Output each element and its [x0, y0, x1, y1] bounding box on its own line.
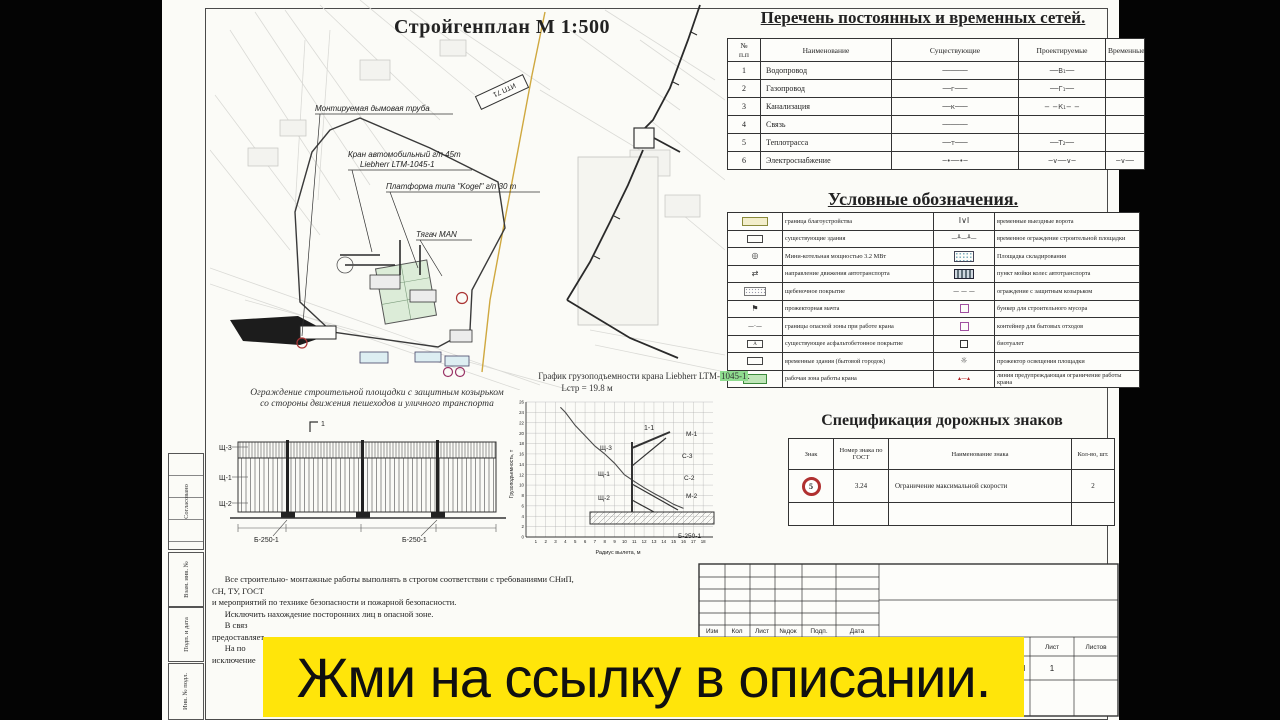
fence-elevation-drawing: 1 Щ-3 Щ-1 Щ-2 Б-250-1 Б-250-1: [218, 416, 518, 548]
networks-header: Наименование: [761, 39, 892, 62]
legend-row: временные здания (бытовой городок)☼проже…: [728, 353, 1140, 371]
legend-label-cell: временное ограждение строительной площад…: [995, 230, 1140, 248]
smallbox-symbol-icon: [747, 235, 763, 243]
legend-symbol-cell: I∨I: [934, 213, 995, 231]
svg-text:Дата: Дата: [850, 628, 865, 635]
legend-symbol-cell: ⇄: [728, 265, 783, 283]
signs-empty-cell: [789, 503, 834, 526]
networks-cell-existing: ──г───: [892, 80, 1019, 98]
chart-tick-label: 5: [574, 539, 577, 544]
signs-cell-name: Ограничение максимальной скорости: [889, 470, 1072, 503]
svg-text:Лист: Лист: [1045, 644, 1059, 651]
dimension-line: [238, 524, 496, 532]
networks-cell-num: 1: [728, 62, 761, 80]
side-strip-approved: Согласовано: [168, 453, 204, 550]
networks-row: 6Электроснабжение─•──•──∨──∨──∨──: [728, 152, 1145, 170]
legend-row: ⇄направление движения автотранспортапунк…: [728, 265, 1140, 283]
signs-header: Наименование знака: [889, 439, 1072, 470]
svg-text:Подп.: Подп.: [810, 628, 827, 635]
video-frame: { "banner": { "text": "Жми на ссылку в о…: [0, 0, 1280, 720]
arrows-symbol-icon: ⇄: [752, 269, 759, 278]
chart-tick-label: 20: [519, 431, 524, 436]
legend-symbol-cell: [934, 265, 995, 283]
networks-row: 5Теплотрасса──т─────Т₂──: [728, 134, 1145, 152]
chimney-label: Монтируемая дымовая труба: [315, 104, 430, 113]
notes-line: Все строительно- монтажные работы выполн…: [212, 574, 692, 586]
networks-cell-name: Электроснабжение: [761, 152, 892, 170]
utility-node-box: [634, 128, 654, 148]
legend-label-cell: прожекторная мачта: [783, 300, 934, 318]
road-signs-table: ЗнакНомер знака по ГОСТНаименование знак…: [788, 438, 1115, 526]
svg-text:Щ-3: Щ-3: [600, 445, 612, 452]
networks-header: № п.п: [728, 39, 761, 62]
legend-symbol-cell: [934, 248, 995, 266]
posts-symbol-icon: —╨—╨—: [951, 235, 976, 242]
legend-symbol-cell: [728, 213, 783, 231]
networks-cell-temporary: ─∨──: [1106, 152, 1145, 170]
dashes-symbol-icon: — — —: [953, 288, 975, 295]
signs-header: Номер знака по ГОСТ: [834, 439, 889, 470]
legend-label-cell: направление движения автотранспорта: [783, 265, 934, 283]
asphalt-symbol-icon: А: [747, 340, 763, 348]
networks-cell-num: 6: [728, 152, 761, 170]
networks-title: Перечень постоянных и временных сетей.: [727, 8, 1119, 28]
light-symbol-icon: ☼: [960, 356, 967, 365]
legend-symbol-cell: — — —: [934, 283, 995, 301]
fence-caption-line1: Ограждение строительной площадки с защит…: [212, 388, 542, 399]
svg-text:С-3: С-3: [682, 453, 693, 460]
chart-tick-label: 8: [522, 493, 525, 498]
legend-symbol-cell: [934, 300, 995, 318]
plan-label-box: [300, 326, 336, 339]
signs-header: Кол-во, шт.: [1072, 439, 1115, 470]
networks-header: Временные: [1106, 39, 1145, 62]
itp-box: ИТП 71: [475, 75, 528, 110]
gate-symbol-icon: I∨I: [959, 216, 970, 225]
mast-symbol-icon: ⚑: [751, 304, 758, 313]
legend-label-cell: щебеночное покрытие: [783, 283, 934, 301]
chart-tick-label: 18: [519, 441, 524, 446]
legend-row: граница благоустройстваI∨Iвременные выез…: [728, 213, 1140, 231]
chart-x-axis-label: Радиус вылета, м: [595, 550, 640, 556]
notes-line: СН, ТУ, ГОСТ: [212, 586, 692, 598]
networks-row: 4Связь──────: [728, 116, 1145, 134]
legend-row: существующие здания—╨—╨—временное огражд…: [728, 230, 1140, 248]
svg-text:Щ-1: Щ-1: [219, 475, 232, 482]
networks-cell-temporary: [1106, 62, 1145, 80]
networks-header: Проектируемые: [1019, 39, 1106, 62]
legend-symbol-cell: ⚑: [728, 300, 783, 318]
networks-cell-name: Газопровод: [761, 80, 892, 98]
legend-symbol-cell: [728, 230, 783, 248]
container-symbol-icon: [960, 322, 969, 331]
toilet-symbol-icon: [960, 340, 968, 348]
svg-text:Кол: Кол: [731, 628, 742, 635]
legend-label-cell: рабочая зона работы крана: [783, 370, 934, 388]
signs-cell-qty: 2: [1072, 470, 1115, 503]
chart-tick-label: 2: [522, 524, 525, 529]
signs-header: Знак: [789, 439, 834, 470]
legend-label-cell: существующее асфальтобетонное покрытие: [783, 335, 934, 353]
chart-tick-label: 6: [522, 503, 525, 508]
networks-cell-projected: [1019, 116, 1106, 134]
notes-line: Исключить нахождение посторонних лиц в о…: [212, 609, 692, 621]
networks-cell-existing: ─•──•─: [892, 152, 1019, 170]
networks-cell-name: Теплотрасса: [761, 134, 892, 152]
legend-symbol-cell: —╨—╨—: [934, 230, 995, 248]
fence-section-structure: [632, 432, 670, 512]
signs-empty-cell: [889, 503, 1072, 526]
svg-text:Щ-2: Щ-2: [598, 495, 610, 502]
bunker-symbol-icon: [960, 304, 969, 313]
notes-line: и мероприятий по технике безопасности и …: [212, 597, 692, 609]
chart-tick-label: 4: [522, 514, 525, 519]
svg-text:1: 1: [321, 421, 325, 428]
svg-text:С-2: С-2: [684, 475, 695, 482]
site-plan-drawing: ИТП 71 Монтируемая дымовая труба Кран ав…: [210, 0, 725, 390]
drawing-sheet: ИТП 71 Монтируемая дымовая труба Кран ав…: [162, 0, 1119, 720]
networks-cell-temporary: [1106, 134, 1145, 152]
legend-label-cell: временные здания (бытовой городок): [783, 353, 934, 371]
gravel-symbol-icon: [744, 287, 766, 296]
networks-cell-projected: ──В₁──: [1019, 62, 1106, 80]
crane-chart-title-highlight: 1045-1: [720, 371, 748, 381]
svg-text:Листов: Листов: [1085, 644, 1107, 651]
legend-label-cell: Площадка складирования: [995, 248, 1140, 266]
chart-tick-label: 12: [519, 472, 524, 477]
svg-text:Б-250-1: Б-250-1: [678, 533, 701, 540]
legend-row: щебеночное покрытие— — —ограждение с защ…: [728, 283, 1140, 301]
signs-row: 53.24Ограничение максимальной скорости2: [789, 470, 1115, 503]
legend-symbol-cell: ▴—▴: [934, 370, 995, 388]
chart-tick-label: 4: [564, 539, 567, 544]
chart-tick-label: 0: [522, 535, 525, 540]
networks-cell-num: 3: [728, 98, 761, 116]
networks-cell-existing: ──к───: [892, 98, 1019, 116]
networks-cell-temporary: [1106, 98, 1145, 116]
networks-cell-temporary: [1106, 116, 1145, 134]
road-signs-title: Спецификация дорожных знаков: [792, 412, 1092, 430]
legend-label-cell: существующие здания: [783, 230, 934, 248]
networks-table: № п.пНаименованиеСуществующиеПроектируем…: [727, 38, 1145, 170]
chart-tick-label: 1: [535, 539, 538, 544]
legend-label-cell: биотуалет: [995, 335, 1140, 353]
networks-cell-projected: ──Т₂──: [1019, 134, 1106, 152]
legend-symbol-cell: А: [728, 335, 783, 353]
chart-tick-label: 24: [519, 410, 524, 415]
legend-title: Условные обозначения.: [727, 189, 1119, 210]
legend-label-cell: Мини-котельная мощностью 3.2 МВт: [783, 248, 934, 266]
legend-symbol-cell: [934, 318, 995, 336]
sheet-number: 1: [1050, 664, 1055, 673]
svg-text:М-2: М-2: [686, 493, 698, 500]
crane-chart-title: График грузоподъемности крана Liebherr L…: [494, 371, 794, 381]
svg-text:№док: №док: [779, 628, 796, 635]
side-strip-inv: Инв. № подл.: [168, 663, 204, 720]
crane-chart-title-text: График грузоподъемности крана Liebherr L…: [538, 371, 720, 381]
legend-label-cell: прожектор освещения площадки: [995, 353, 1140, 371]
dashdot-symbol-icon: —·—: [748, 323, 762, 330]
networks-cell-num: 2: [728, 80, 761, 98]
view-mark: 1: [310, 421, 325, 432]
legend-label-cell: ограждение с защитным козырьком: [995, 283, 1140, 301]
crane-label-2: Liebherr LTM-1045-1: [360, 160, 435, 169]
side-strip-podp: Подп. и дата: [168, 607, 204, 662]
networks-cell-name: Водопровод: [761, 62, 892, 80]
legend-symbol-cell: [728, 283, 783, 301]
crane-chart-title-period: .: [748, 371, 750, 381]
fence-caption-line2: со стороны движения пешеходов и уличного…: [212, 399, 542, 410]
cta-banner-text: Жми на ссылку в описании.: [297, 645, 991, 710]
signs-empty-cell: [1072, 503, 1115, 526]
plan-title: Стройгенплан М 1:500: [362, 16, 642, 39]
notes-line: В связ: [212, 620, 692, 632]
svg-text:Изм: Изм: [706, 628, 719, 635]
legend-label-cell: бункер для строительного мусора: [995, 300, 1140, 318]
cta-banner: Жми на ссылку в описании.: [263, 637, 1024, 717]
wash-symbol-icon: [954, 269, 974, 279]
legend-label-cell: граница благоустройства: [783, 213, 934, 231]
svg-text:М-1: М-1: [686, 431, 698, 438]
svg-text:Щ-2: Щ-2: [219, 501, 232, 508]
fence-section-drawing: 1-1 Щ-3 М-1 С-3 Щ-1 С-2 Щ-2 М-2 Б-250-1: [582, 420, 722, 542]
beige-symbol-icon: [742, 217, 768, 226]
signs-empty-row: [789, 503, 1115, 526]
tractor-label: Тягач MAN: [416, 230, 457, 239]
networks-cell-name: Канализация: [761, 98, 892, 116]
svg-text:Лист: Лист: [755, 628, 769, 635]
legend-row: Асуществующее асфальтобетонное покрытиеб…: [728, 335, 1140, 353]
networks-header-row: № п.пНаименованиеСуществующиеПроектируем…: [728, 39, 1145, 62]
networks-cell-existing: ──────: [892, 116, 1019, 134]
signs-cell-sign: 5: [789, 470, 834, 503]
networks-header: Существующие: [892, 39, 1019, 62]
svg-text:Б-250-1: Б-250-1: [402, 537, 427, 544]
networks-row: 3Канализация──к───− −К₁− −: [728, 98, 1145, 116]
platform-label: Платформа типа "Kogel" г/п 30 т: [386, 182, 517, 191]
networks-row: 1Водопровод────────В₁──: [728, 62, 1145, 80]
networks-cell-num: 4: [728, 116, 761, 134]
speed-limit-sign-icon: 5: [802, 477, 821, 496]
networks-cell-temporary: [1106, 80, 1145, 98]
chart-tick-label: 2: [544, 539, 547, 544]
svg-text:Щ-1: Щ-1: [598, 471, 610, 478]
legend-row: ◎Мини-котельная мощностью 3.2 МВтПлощадк…: [728, 248, 1140, 266]
legend-symbol-cell: ◎: [728, 248, 783, 266]
networks-cell-name: Связь: [761, 116, 892, 134]
warn-symbol-icon: ▴—▴: [958, 375, 970, 382]
section-mark: 1-1: [644, 425, 654, 432]
legend-row: —·—границы опасной зоны при работе крана…: [728, 318, 1140, 336]
legend-label-cell: пункт мойки колес автотранспорта: [995, 265, 1140, 283]
signs-header-row: ЗнакНомер знака по ГОСТНаименование знак…: [789, 439, 1115, 470]
legend-label-cell: линия предупреждающая ограничение работы…: [995, 370, 1140, 388]
svg-text:Б-250-1: Б-250-1: [254, 537, 279, 544]
networks-cell-projected: ──Г₁──: [1019, 80, 1106, 98]
chart-tick-label: 10: [519, 483, 524, 488]
crane-label-1: Кран автомобильный г/п 45т: [348, 150, 461, 159]
legend-row: ⚑прожекторная мачтабункер для строительн…: [728, 300, 1140, 318]
legend-symbol-cell: [934, 335, 995, 353]
chart-tick-label: 22: [519, 420, 524, 425]
networks-cell-projected: ─∨──∨─: [1019, 152, 1106, 170]
fence-section-braces: [632, 438, 678, 512]
cabins-symbol-icon: [747, 357, 763, 365]
chart-tick-label: 16: [519, 452, 524, 457]
side-strip-vzam: Взам. инв. №: [168, 552, 204, 607]
networks-row: 2Газопровод──г─────Г₁──: [728, 80, 1145, 98]
legend-table: граница благоустройстваI∨Iвременные выез…: [727, 212, 1140, 388]
signs-cell-gost: 3.24: [834, 470, 889, 503]
signs-empty-cell: [834, 503, 889, 526]
legend-symbol-cell: —·—: [728, 318, 783, 336]
networks-cell-existing: ──────: [892, 62, 1019, 80]
fence-caption: Ограждение строительной площадки с защит…: [212, 388, 542, 410]
networks-cell-existing: ──т───: [892, 134, 1019, 152]
networks-cell-num: 5: [728, 134, 761, 152]
chart-tick-label: 3: [554, 539, 557, 544]
legend-symbol-cell: ☼: [934, 353, 995, 371]
legend-label-cell: контейнер для бытовых отходов: [995, 318, 1140, 336]
stadium-outline: [578, 157, 658, 325]
legend-symbol-cell: [728, 353, 783, 371]
legend-label-cell: временные выездные ворота: [995, 213, 1140, 231]
networks-cell-projected: − −К₁− −: [1019, 98, 1106, 116]
storage-symbol-icon: [954, 251, 974, 262]
legend-label-cell: границы опасной зоны при работе крана: [783, 318, 934, 336]
svg-text:Щ-3: Щ-3: [219, 445, 232, 452]
chart-tick-label: 14: [519, 462, 524, 467]
boiler-symbol-icon: ◎: [752, 251, 759, 260]
